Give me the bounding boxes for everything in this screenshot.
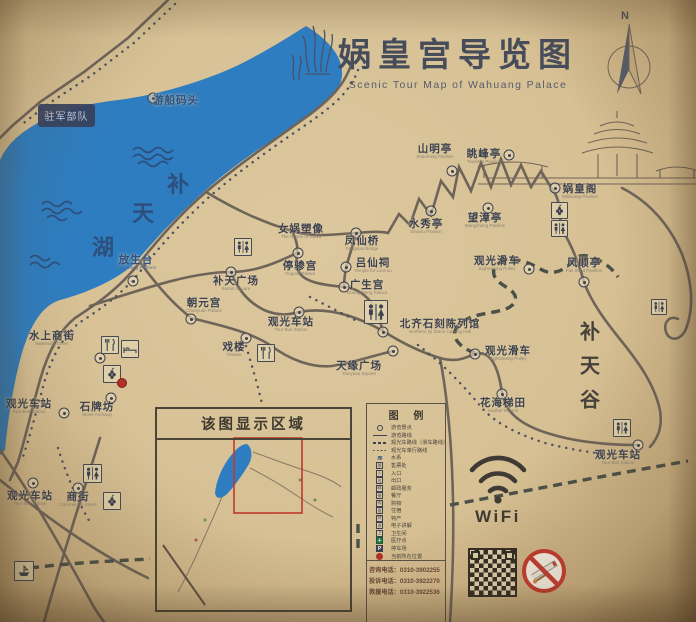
poi-name-en: Waterside Street xyxy=(29,342,75,347)
legend-symbol-box: 特 xyxy=(376,515,383,522)
phone-line: 咨询电话：0310-3902255 xyxy=(369,566,445,577)
wahuang-palace-map: 娲皇宫导览图 Scenic Tour Map of Wahuang Palace… xyxy=(0,0,696,622)
poi-name-en: Fair Wind Pavilion xyxy=(566,269,602,274)
poi-label: 观光车站Tour Bus Station xyxy=(268,317,314,333)
poi-name-en: Wangzhang Pavilion xyxy=(465,224,506,229)
poi-name-en: Tour Bus Station xyxy=(595,461,641,466)
phone-numbers: 咨询电话：0310-3902255投诉电话：0310-3922270救援电话：0… xyxy=(369,566,445,599)
legend-symbol-med: + xyxy=(376,537,383,544)
current-location-dot xyxy=(117,378,127,388)
legend-symbol-box: 购 xyxy=(376,500,383,507)
legend-label: 当前所在位置 xyxy=(391,553,422,560)
valley-name-char: 补 xyxy=(580,316,600,345)
restaurant-icon xyxy=(101,336,119,354)
legend-symbol-dash xyxy=(372,439,388,446)
toilet-icon xyxy=(83,464,102,483)
legend-item: 出出口 xyxy=(367,477,445,485)
legend-label: 出口 xyxy=(391,477,401,484)
poi-marker xyxy=(426,206,437,217)
poi-label: 观光车站Tour Bus Station xyxy=(6,399,52,415)
legend-label: 医疗点 xyxy=(391,537,407,544)
phone-line: 投诉电话：0310-3922270 xyxy=(369,577,445,588)
specialty-icon xyxy=(551,202,568,219)
poi-label: 游船码头 xyxy=(153,95,199,106)
poi-marker xyxy=(95,353,106,364)
poi-label: 眺峰亭Tiaofeng Pavilion xyxy=(467,149,502,165)
legend-symbol-box: 餐 xyxy=(376,492,383,499)
legend-item: 观光车路线（滑车路线） xyxy=(367,439,445,447)
poi-label: 观光滑车Sightseeing Pulley xyxy=(474,256,520,272)
restaurant-icon xyxy=(257,344,275,362)
legend-item: 卫卫生间 xyxy=(367,530,445,538)
poi-marker xyxy=(504,150,515,161)
poi-marker xyxy=(341,262,352,273)
poi-marker xyxy=(470,349,481,360)
map-title: 娲皇宫导览图 Scenic Tour Map of Wahuang Palace xyxy=(318,28,598,91)
legend-item: 餐餐厅 xyxy=(367,492,445,500)
poi-name-en: Sightseeing Pulley xyxy=(485,357,531,362)
poi-label: 朝元宫Chaoyuan Palace xyxy=(186,298,222,314)
poi-label: 北齐石刻陈列馆Northern Qi Stone Carving Hall xyxy=(400,319,481,335)
toilet-icon xyxy=(551,220,568,237)
map-title-zh: 娲皇宫导览图 xyxy=(318,28,598,76)
poi-name-en: Wahuang Pavilion xyxy=(562,195,598,200)
legend-item: 邮邮政服务 xyxy=(367,484,445,492)
poi-label: 放生台Fangsheng Platform xyxy=(116,255,157,271)
legend-label: 住宿 xyxy=(391,507,401,514)
legend-label: 餐厅 xyxy=(391,492,401,499)
toilet-icon xyxy=(364,300,388,324)
legend-item: ≋水系 xyxy=(367,454,445,462)
wifi-icon xyxy=(472,458,524,504)
poi-label: 天缘广场Tianyuan Square xyxy=(336,361,382,377)
poi-label: 商街Commercial Street xyxy=(59,492,96,508)
legend-item: 特特产 xyxy=(367,515,445,523)
lake-name-char: 补 xyxy=(167,167,189,199)
poi-name-en: Guangsheng Palace xyxy=(347,291,388,296)
poi-marker xyxy=(59,408,70,419)
legend-label: 电子讲解 xyxy=(391,522,412,529)
toilet-icon xyxy=(234,238,252,256)
legend-label: 邮政服务 xyxy=(391,485,412,492)
poi-label: 广生宫Guangsheng Palace xyxy=(347,280,388,296)
poi-name-en: The Statue of Nuwa xyxy=(278,235,324,240)
legend-label: 卫生间 xyxy=(391,530,407,537)
valley-name-char: 天 xyxy=(580,350,600,379)
legend-symbol-cur xyxy=(376,553,383,560)
legend-item: +医疗点 xyxy=(367,537,445,545)
legend-item: 宿住宿 xyxy=(367,507,445,515)
poi-marker xyxy=(293,248,304,259)
poi-label: 凤仙桥Fengxian Bridge xyxy=(345,236,380,252)
valley-name-char: 谷 xyxy=(580,384,600,413)
legend-symbol-wave: ≋ xyxy=(372,454,388,461)
legend-item: P停车场 xyxy=(367,545,445,553)
phone-line: 救援电话：0310-3922536 xyxy=(369,588,445,599)
poi-label: 观光车站Tour Bus Station xyxy=(595,450,641,466)
legend-symbol-dot xyxy=(372,424,388,431)
compass-north-label: N xyxy=(621,10,629,22)
legend-symbol-box: 讲 xyxy=(376,522,383,529)
legend-item: 当前所在位置 xyxy=(367,552,445,560)
poi-label: 山明亭Shanming Pavilion xyxy=(416,144,453,160)
poi-label: 风顺亭Fair Wind Pavilion xyxy=(566,258,602,274)
legend-label: 停车场 xyxy=(391,545,407,552)
poi-label: 观光车站Tour Bus Station xyxy=(7,491,53,507)
legend-item: 购购物 xyxy=(367,499,445,507)
legend-item: 票售票处 xyxy=(367,462,445,470)
map-title-en: Scenic Tour Map of Wahuang Palace xyxy=(318,79,598,91)
poi-name-en: Northern Qi Stone Carving Hall xyxy=(400,330,481,335)
lake-name-char: 天 xyxy=(132,196,154,228)
legend-label: 入口 xyxy=(391,470,401,477)
poi-label: 观光滑车Sightseeing Pulley xyxy=(485,346,531,362)
poi-name-en: Shuixiu Pavilion xyxy=(409,230,444,235)
inset-map-frame: 该图显示区域 xyxy=(155,407,352,612)
legend-label: 售票处 xyxy=(391,462,407,469)
poi-marker xyxy=(579,277,590,288)
qr-code xyxy=(468,548,517,597)
poi-label: 水秀亭Shuixiu Pavilion xyxy=(409,219,444,235)
legend-label: 游览景点 xyxy=(391,424,412,431)
legend-item: 讲电子讲解 xyxy=(367,522,445,530)
compass-icon xyxy=(608,24,650,94)
legend-symbol-box: 邮 xyxy=(376,485,383,492)
poi-name-en: Fangsheng Platform xyxy=(116,266,157,271)
wifi-label: WiFi xyxy=(475,507,521,527)
legend-item: 游览景点 xyxy=(367,424,445,432)
poi-marker xyxy=(378,327,389,338)
specialty-icon xyxy=(103,492,121,510)
legend-symbol-dots xyxy=(372,447,388,454)
poi-name-en: Sightseeing Pulley xyxy=(474,267,520,272)
poi-name-en: Chaoyuan Palace xyxy=(186,309,222,314)
legend-symbol-park: P xyxy=(376,545,383,552)
poi-label: 娲皇阁Wahuang Pavilion xyxy=(562,184,598,200)
legend-symbol-solid xyxy=(372,432,388,439)
legend-symbol-box: 出 xyxy=(376,477,383,484)
legend-label: 游览路线 xyxy=(391,432,412,439)
legend-symbol-box: 票 xyxy=(376,462,383,469)
legend-label: 观光车单行路线 xyxy=(391,447,427,454)
inset-divider xyxy=(157,438,350,440)
inset-title: 该图显示区域 xyxy=(157,409,350,434)
lake-name-char: 湖 xyxy=(92,230,114,262)
poi-label: 女娲塑像The Statue of Nuwa xyxy=(278,224,324,240)
poi-marker xyxy=(388,346,399,357)
legend-symbol-box: 宿 xyxy=(376,507,383,514)
no-smoking-icon xyxy=(524,551,564,591)
poi-name-en: Tingcan Palace xyxy=(283,272,318,277)
legend-label: 购物 xyxy=(391,500,401,507)
legend-label: 水系 xyxy=(391,454,401,461)
palace-illustration xyxy=(478,111,696,184)
poi-name-en: Tour Bus Station xyxy=(268,328,314,333)
legend-label: 特产 xyxy=(391,515,401,522)
poi-marker xyxy=(186,314,197,325)
poi-marker xyxy=(550,183,561,194)
phone-divider xyxy=(366,560,446,561)
poi-marker xyxy=(447,166,458,177)
poi-name-en: Shanming Pavilion xyxy=(416,155,453,160)
poi-name-en: Tour Bus Station xyxy=(6,410,52,415)
poi-name-en: Theatre xyxy=(223,353,246,358)
poi-name-en: Huahai Terrace xyxy=(480,409,526,414)
toilet-icon xyxy=(651,299,667,315)
poi-name-en: Temple for Lord Lu xyxy=(354,269,392,274)
poi-name-en: Fengxian Bridge xyxy=(345,247,380,252)
poi-label: 戏楼Theatre xyxy=(223,342,246,358)
legend-symbol-box: 卫 xyxy=(376,530,383,537)
legend-title: 图 例 xyxy=(367,404,445,424)
poi-name-en: Tour Bus Station xyxy=(7,502,53,507)
legend-item: 游览路线 xyxy=(367,432,445,440)
military-area-label: 驻军部队 xyxy=(38,104,95,127)
poi-name-en: Tianyuan Square xyxy=(336,372,382,377)
poi-marker xyxy=(28,478,39,489)
boat-icon xyxy=(14,561,34,581)
poi-name-en: Butian Square xyxy=(213,287,259,292)
poi-label: 石牌坊Stone Archway xyxy=(80,402,115,418)
butian-lake xyxy=(0,26,342,455)
poi-label: 望漳亭Wangzhang Pavilion xyxy=(465,213,506,229)
poi-name-en: Stone Archway xyxy=(80,413,115,418)
poi-name-en: Tiaofeng Pavilion xyxy=(467,160,502,165)
legend-item: 入入口 xyxy=(367,469,445,477)
legend-label: 观光车路线（滑车路线） xyxy=(391,439,448,446)
hotel-icon xyxy=(121,340,139,358)
poi-label: 吕仙祠Temple for Lord Lu xyxy=(354,258,392,274)
poi-label: 补天广场Butian Square xyxy=(213,276,259,292)
poi-marker xyxy=(128,276,139,287)
poi-marker xyxy=(524,264,535,275)
poi-name-zh: 游船码头 xyxy=(153,95,199,106)
poi-label: 花海梯田Huahai Terrace xyxy=(480,398,526,414)
poi-label: 水上商街Waterside Street xyxy=(29,331,75,347)
poi-label: 停骖宫Tingcan Palace xyxy=(283,261,318,277)
poi-name-en: Commercial Street xyxy=(59,503,96,508)
toilet-icon xyxy=(613,419,631,437)
legend-symbol-box: 入 xyxy=(376,470,383,477)
